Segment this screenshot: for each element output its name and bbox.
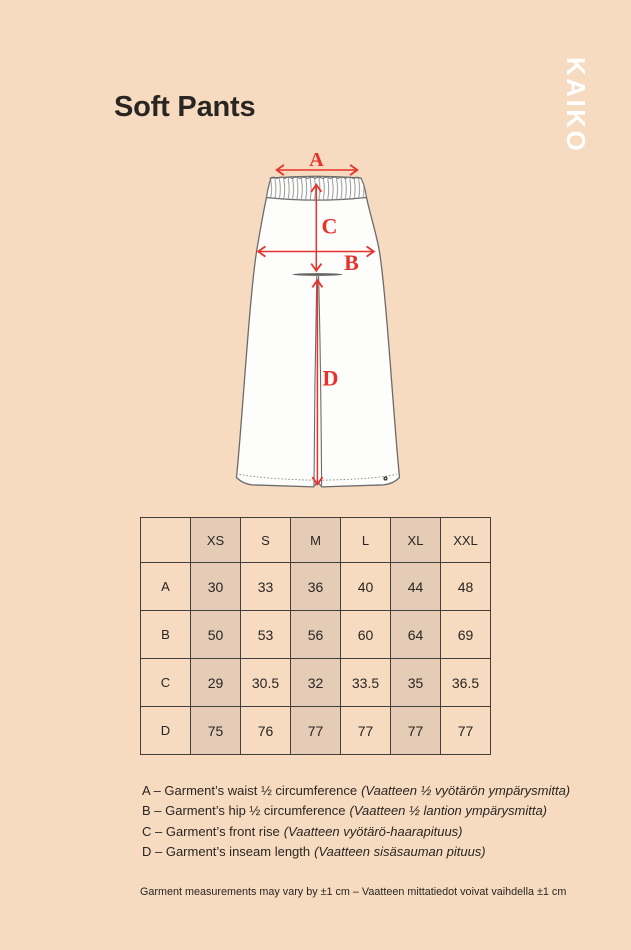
brand-logo-vertical: KAIKO: [560, 57, 591, 153]
size-col-header: M: [291, 518, 341, 563]
legend-item-b: B – Garment’s hip ½ circumference(Vaatte…: [142, 801, 570, 821]
cell: 33.5: [341, 659, 391, 707]
legend-item-d: D – Garment’s inseam length(Vaatteen sis…: [142, 842, 570, 862]
legend-text-fi: (Vaatteen vyötärö-haarapituus): [284, 824, 463, 839]
measure-label-b: B: [344, 250, 359, 275]
legend-text-fi: (Vaatteen ½ lantion ympärysmitta): [350, 803, 548, 818]
cell: 50: [191, 611, 241, 659]
size-col-header: L: [341, 518, 391, 563]
cell: 60: [341, 611, 391, 659]
cell: 29: [191, 659, 241, 707]
legend-text-en: A – Garment’s waist ½ circumference: [142, 783, 357, 798]
cell: 53: [241, 611, 291, 659]
cell: 30: [191, 563, 241, 611]
size-col-header: XXL: [441, 518, 491, 563]
cell: 76: [241, 707, 291, 755]
page-background: A C B D Soft Pants KAIKO XS S M L XL XXL…: [0, 0, 631, 950]
cell: 36: [291, 563, 341, 611]
measure-label-c: C: [322, 214, 338, 239]
size-header-row: XS S M L XL XXL: [141, 518, 491, 563]
cell: 48: [441, 563, 491, 611]
legend-text-fi: (Vaatteen sisäsauman pituus): [314, 844, 486, 859]
measurement-row-b: B 50 53 56 60 64 69: [141, 611, 491, 659]
cell: 30.5: [241, 659, 291, 707]
row-label: B: [141, 611, 191, 659]
size-col-header: XL: [391, 518, 441, 563]
measurement-row-d: D 75 76 77 77 77 77: [141, 707, 491, 755]
cell: 75: [191, 707, 241, 755]
measure-label-a: A: [309, 149, 324, 171]
cell: 32: [291, 659, 341, 707]
cell: 36.5: [441, 659, 491, 707]
legend-text-en: D – Garment’s inseam length: [142, 844, 310, 859]
row-label: A: [141, 563, 191, 611]
cell: 77: [441, 707, 491, 755]
row-label: D: [141, 707, 191, 755]
size-col-header: XS: [191, 518, 241, 563]
cell: 77: [341, 707, 391, 755]
page-title: Soft Pants: [114, 93, 255, 122]
cell: 56: [291, 611, 341, 659]
measure-label-d: D: [323, 366, 339, 391]
cell: 33: [241, 563, 291, 611]
cell: 40: [341, 563, 391, 611]
cell: 69: [441, 611, 491, 659]
legend-text-en: C – Garment’s front rise: [142, 824, 280, 839]
cell: 35: [391, 659, 441, 707]
cell: 64: [391, 611, 441, 659]
legend-text-en: B – Garment’s hip ½ circumference: [142, 803, 346, 818]
legend-text-fi: (Vaatteen ½ vyötärön ympärysmitta): [361, 783, 570, 798]
hem-button-center: [385, 478, 386, 479]
tolerance-note: Garment measurements may vary by ±1 cm –…: [140, 885, 566, 899]
row-label: C: [141, 659, 191, 707]
cell: 77: [291, 707, 341, 755]
size-table: XS S M L XL XXL A 30 33 36 40 44 48 B 50…: [140, 517, 491, 755]
legend-item-c: C – Garment’s front rise(Vaatteen vyötär…: [142, 822, 570, 842]
size-col-header: S: [241, 518, 291, 563]
cell: 77: [391, 707, 441, 755]
measurement-row-a: A 30 33 36 40 44 48: [141, 563, 491, 611]
crotch-seam: [293, 273, 343, 276]
cell: 44: [391, 563, 441, 611]
measurement-legend: A – Garment’s waist ½ circumference(Vaat…: [142, 781, 570, 862]
corner-cell: [141, 518, 191, 563]
legend-item-a: A – Garment’s waist ½ circumference(Vaat…: [142, 781, 570, 801]
measurement-row-c: C 29 30.5 32 33.5 35 36.5: [141, 659, 491, 707]
